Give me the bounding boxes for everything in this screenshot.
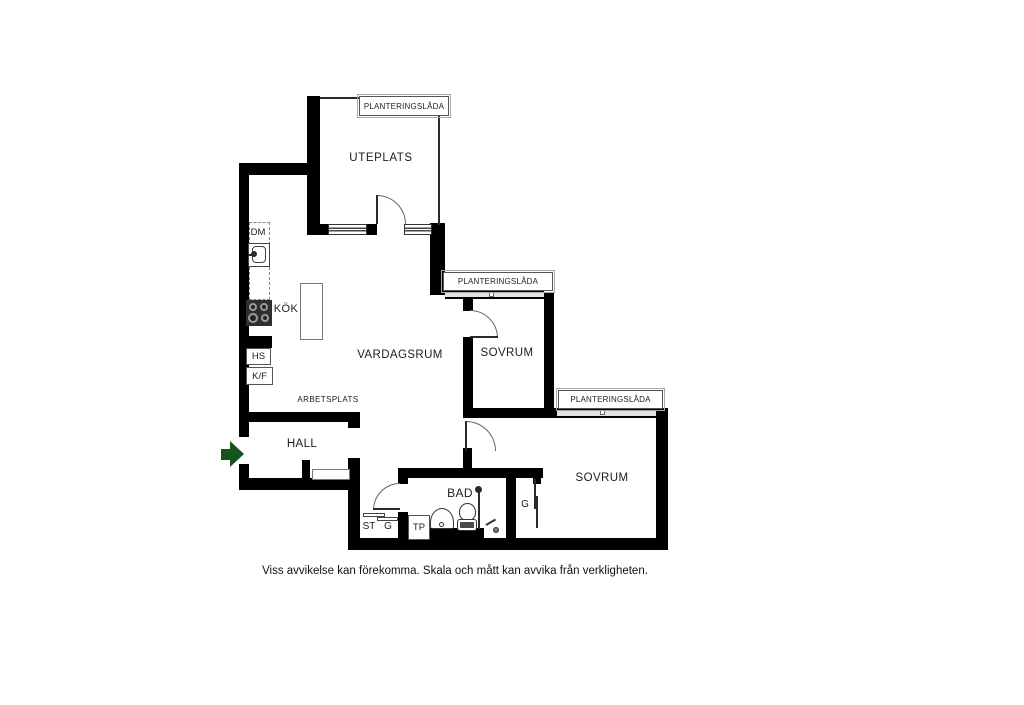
door-leaf <box>470 336 498 338</box>
planter-label: PLANTERINGSLÅDA <box>458 277 538 286</box>
cabinet-hs: HS <box>246 348 271 365</box>
wall <box>463 448 472 470</box>
toilet-icon <box>457 503 477 532</box>
washbasin-icon <box>430 508 454 529</box>
wall <box>240 336 272 348</box>
wall <box>239 412 360 422</box>
wall <box>544 293 554 418</box>
door-leaf <box>373 508 400 510</box>
entrance-arrow <box>221 441 245 467</box>
closet-label-g-hall: G <box>380 521 396 532</box>
window-band <box>445 290 544 299</box>
burner-icon <box>260 303 268 311</box>
wall <box>463 408 554 418</box>
room-label-vardagsrum: VARDAGSRUM <box>350 349 450 361</box>
burner-icon <box>249 303 257 311</box>
door-leaf <box>465 421 467 451</box>
planter-label: PLANTERINGSLÅDA <box>364 102 444 111</box>
wall <box>543 408 557 418</box>
closet-label-g-sovrum: G <box>516 499 534 510</box>
door-arc-sovrum2 <box>466 421 496 451</box>
closet-label-st: ST <box>358 521 380 532</box>
kitchen-island <box>300 283 323 340</box>
wall <box>302 460 310 480</box>
disclaimer-text: Viss avvikelse kan förekomma. Skala och … <box>250 565 660 577</box>
wall <box>463 337 473 418</box>
room-label-kok: KÖK <box>271 303 301 315</box>
cabinet-kf-label: K/F <box>252 371 267 382</box>
cabinet-tp-label: TP <box>413 522 425 533</box>
room-label-sovrum-1: SOVRUM <box>477 347 537 359</box>
burner-icon <box>248 313 258 323</box>
patio-rail-right <box>438 97 440 225</box>
door-arc-uteplats <box>377 195 406 224</box>
faucet-icon <box>251 251 257 257</box>
appliance-label-dm: DM <box>246 227 270 238</box>
wall <box>506 478 516 538</box>
basin-drain <box>439 522 444 527</box>
room-label-bad: BAD <box>440 486 480 500</box>
room-label-hall: HALL <box>282 438 322 450</box>
area-label-arbetsplats: ARBETSPLATS <box>293 395 363 404</box>
wall <box>307 96 320 226</box>
door-arc-bad <box>373 483 400 510</box>
shower-hose <box>486 519 497 526</box>
door-arc-sovrum1 <box>470 310 498 338</box>
planter-label: PLANTERINGSLÅDA <box>570 395 650 404</box>
cabinet-hs-label: HS <box>252 351 265 362</box>
hall-bench <box>312 469 350 480</box>
burner-icon <box>261 314 269 322</box>
planter-box: PLANTERINGSLÅDA <box>558 390 663 409</box>
wall <box>307 224 328 235</box>
stove-icon <box>246 300 272 326</box>
closet-sliding-door <box>536 496 538 528</box>
window-mullion <box>600 410 605 415</box>
floor-plan: PLANTERINGSLÅDA PLANTERINGSLÅDA PLANTERI… <box>0 0 1024 705</box>
window <box>404 224 432 235</box>
window <box>328 224 367 235</box>
door-leaf <box>376 195 378 224</box>
planter-box: PLANTERINGSLÅDA <box>443 272 553 291</box>
wall <box>239 163 307 175</box>
wall <box>348 538 668 550</box>
wall <box>656 408 668 550</box>
wall <box>367 224 377 235</box>
wall <box>398 512 408 540</box>
window-band <box>557 408 656 418</box>
planter-box: PLANTERINGSLÅDA <box>359 96 449 116</box>
room-label-uteplats: UTEPLATS <box>341 152 421 164</box>
shower-head <box>493 527 499 533</box>
window-mullion <box>489 292 494 297</box>
cabinet-tp: TP <box>408 515 430 540</box>
toilet-tank-band <box>460 522 474 528</box>
room-label-sovrum-2: SOVRUM <box>572 472 632 484</box>
arrow-head <box>230 441 244 467</box>
cabinet-kf: K/F <box>246 367 273 385</box>
wall <box>348 420 360 428</box>
shower-head-icon <box>486 522 500 534</box>
